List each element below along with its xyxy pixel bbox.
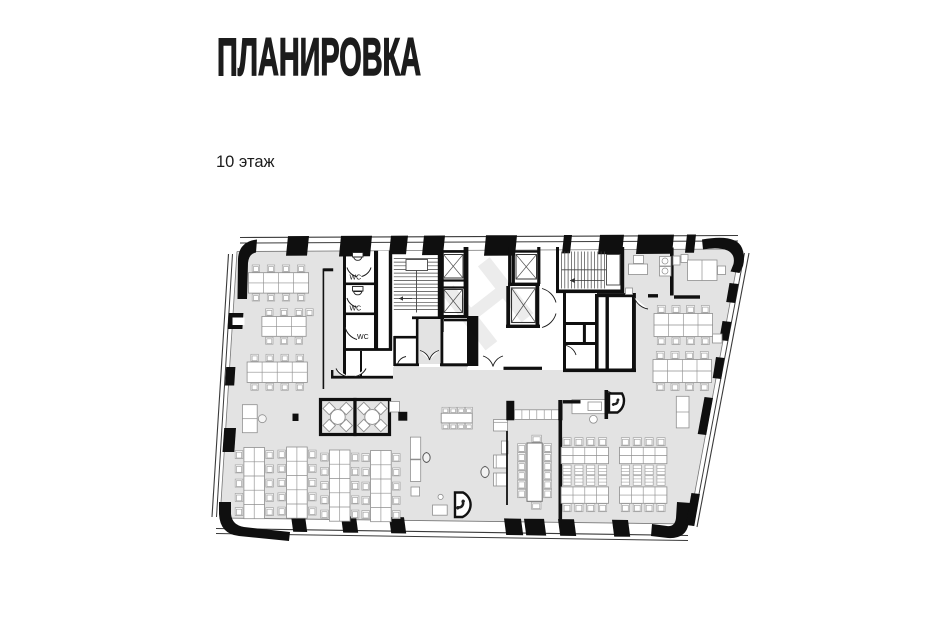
svg-text:10 этаж: 10 этаж bbox=[216, 153, 275, 171]
svg-text:WC: WC bbox=[350, 306, 362, 313]
svg-text:WC: WC bbox=[350, 275, 362, 282]
svg-text:ПЛАНИРОВКА: ПЛАНИРОВКА bbox=[217, 28, 421, 87]
svg-text:WC: WC bbox=[357, 334, 369, 341]
